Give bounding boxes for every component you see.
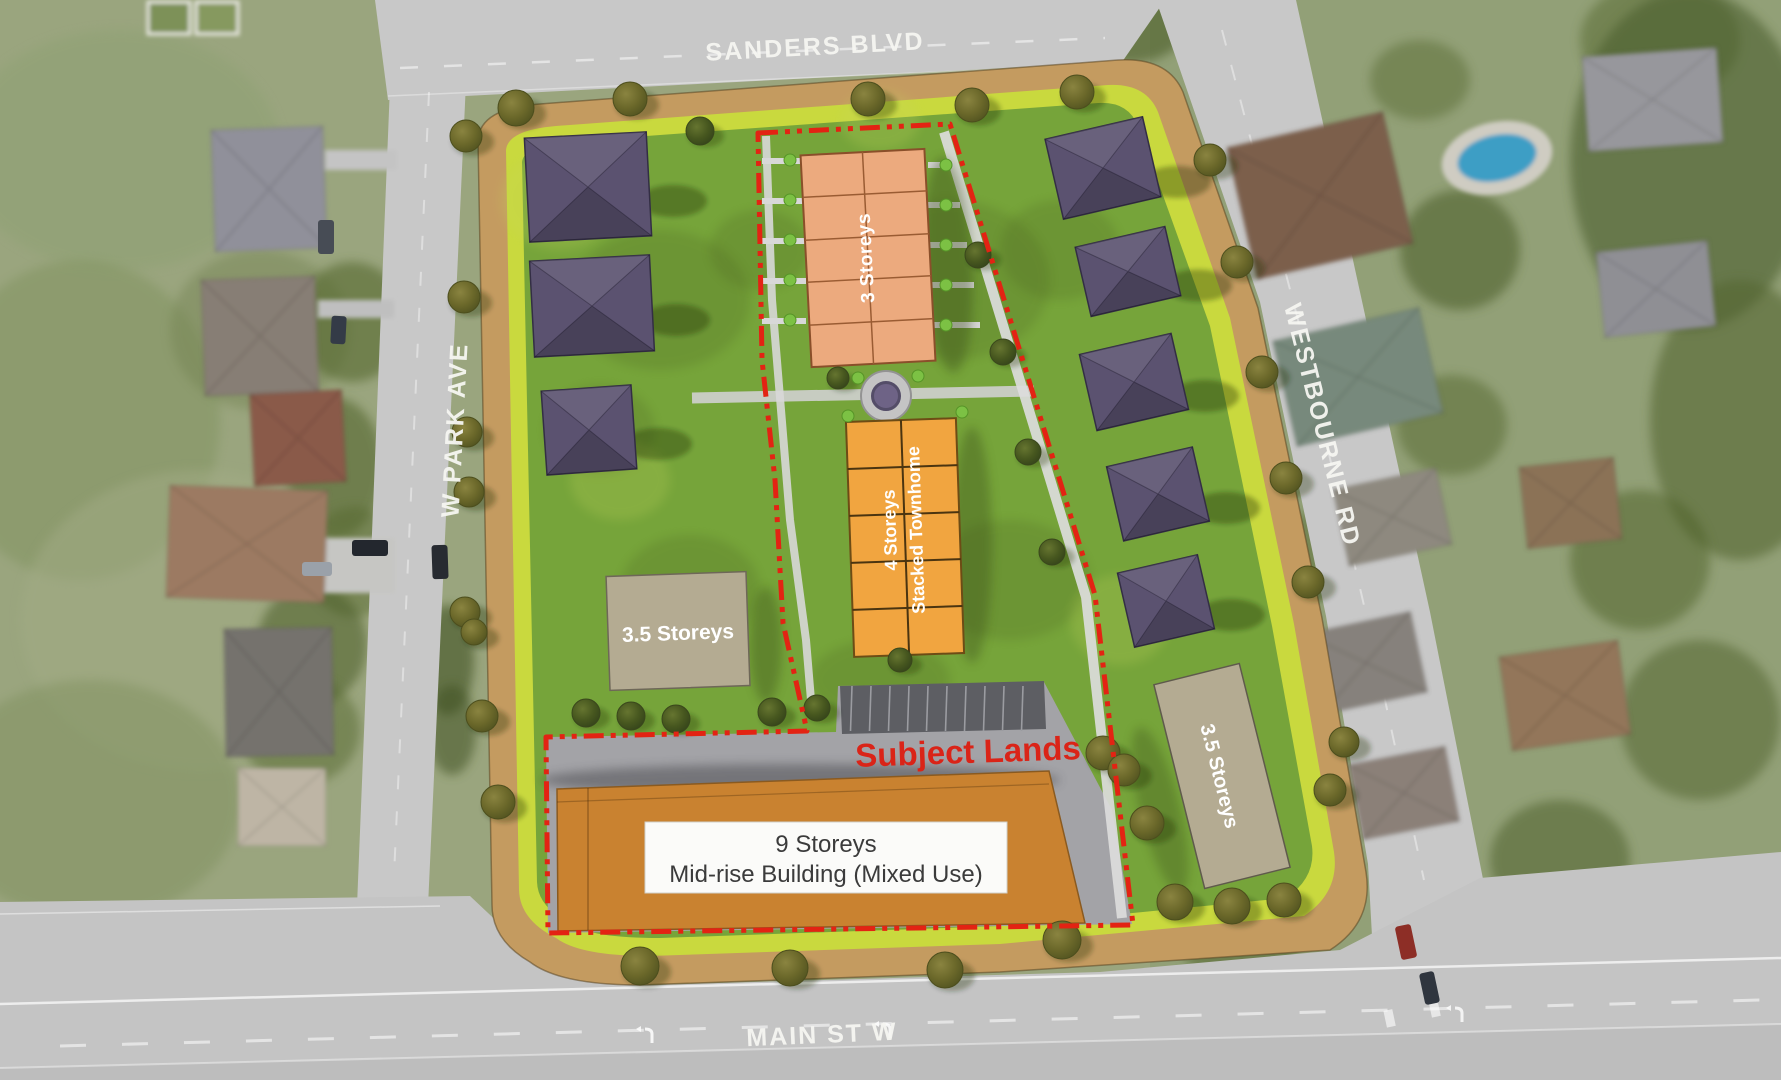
bush-icon bbox=[940, 279, 952, 291]
tree-icon bbox=[498, 90, 534, 126]
field-blob bbox=[1620, 640, 1780, 800]
tree-icon bbox=[617, 702, 645, 730]
car bbox=[330, 316, 346, 345]
tree-icon bbox=[1246, 356, 1278, 388]
site-plan-screenshot: 9 Storeys Mid-rise Building (Mixed Use) … bbox=[0, 0, 1781, 1080]
tree-icon bbox=[758, 698, 786, 726]
tree-icon bbox=[1039, 539, 1065, 565]
tree-icon bbox=[450, 120, 482, 152]
aerial-house bbox=[1519, 457, 1622, 548]
tree-icon bbox=[851, 82, 885, 116]
field-blob bbox=[1370, 40, 1470, 120]
bush-icon bbox=[784, 314, 796, 326]
label-subject-lands: Subject Lands bbox=[855, 729, 1082, 774]
tree-icon bbox=[1292, 566, 1324, 598]
bush-icon bbox=[940, 239, 952, 251]
tree-icon bbox=[461, 619, 487, 645]
roundabout-center bbox=[873, 383, 900, 410]
tree-icon bbox=[466, 700, 498, 732]
bush-icon bbox=[784, 194, 796, 206]
tree-icon bbox=[927, 952, 963, 988]
aerial-house bbox=[1499, 640, 1631, 751]
car bbox=[431, 545, 448, 580]
tree-icon bbox=[1060, 75, 1094, 109]
aerial-house bbox=[1596, 240, 1716, 337]
tree-icon bbox=[572, 699, 600, 727]
car bbox=[318, 220, 334, 254]
tree-icon bbox=[1214, 888, 1250, 924]
tree-icon bbox=[1267, 883, 1301, 917]
car bbox=[352, 540, 388, 556]
bush-icon bbox=[956, 406, 968, 418]
tree-icon bbox=[1314, 774, 1346, 806]
bush-icon bbox=[842, 410, 854, 422]
bush-icon bbox=[940, 159, 952, 171]
tree-icon bbox=[1329, 727, 1359, 757]
bush-icon bbox=[784, 154, 796, 166]
tree-icon bbox=[1157, 884, 1193, 920]
aerial-house bbox=[211, 126, 327, 252]
midrise-label-line1: 9 Storeys bbox=[775, 831, 876, 858]
aerial-house bbox=[238, 768, 326, 846]
tree-icon bbox=[1221, 246, 1253, 278]
tree-icon bbox=[662, 705, 690, 733]
tree-icon bbox=[448, 281, 480, 313]
tree-icon bbox=[1108, 754, 1140, 786]
bush-icon bbox=[940, 319, 952, 331]
tree-icon bbox=[888, 648, 912, 672]
tree-icon bbox=[1194, 144, 1226, 176]
aerial-house bbox=[166, 485, 328, 602]
bush-icon bbox=[784, 274, 796, 286]
site-house bbox=[524, 132, 651, 242]
bush-icon bbox=[784, 234, 796, 246]
field-blob bbox=[1400, 190, 1520, 310]
aerial-house bbox=[250, 390, 347, 487]
tree-icon bbox=[481, 785, 515, 819]
bush-icon bbox=[940, 199, 952, 211]
midrise-9-storeys: 9 Storeys Mid-rise Building (Mixed Use) bbox=[557, 771, 1085, 931]
tree-icon bbox=[621, 947, 659, 985]
aerial-house bbox=[201, 276, 319, 396]
tree-icon bbox=[1130, 806, 1164, 840]
aerial-house bbox=[224, 627, 334, 757]
tree-icon bbox=[955, 88, 989, 122]
tree-icon bbox=[686, 117, 714, 145]
label-3-5-storeys-left: 3.5 Storeys bbox=[622, 620, 735, 647]
site-house bbox=[541, 385, 637, 475]
bush-icon bbox=[852, 372, 864, 384]
label-stacked-line1: 4 Storeys bbox=[879, 489, 902, 571]
tree-icon bbox=[990, 339, 1016, 365]
aerial-house bbox=[1582, 47, 1723, 151]
tree-icon bbox=[613, 82, 647, 116]
tree-icon bbox=[804, 695, 830, 721]
site-plan-canvas: 9 Storeys Mid-rise Building (Mixed Use) … bbox=[0, 0, 1781, 1080]
midrise-label-line2: Mid-rise Building (Mixed Use) bbox=[669, 861, 982, 888]
tree-icon bbox=[827, 367, 849, 389]
bush-icon bbox=[912, 370, 924, 382]
tree-icon bbox=[1270, 462, 1302, 494]
car bbox=[302, 562, 332, 576]
tree-icon bbox=[1015, 439, 1041, 465]
site-house bbox=[530, 255, 655, 357]
tree-icon bbox=[772, 950, 808, 986]
